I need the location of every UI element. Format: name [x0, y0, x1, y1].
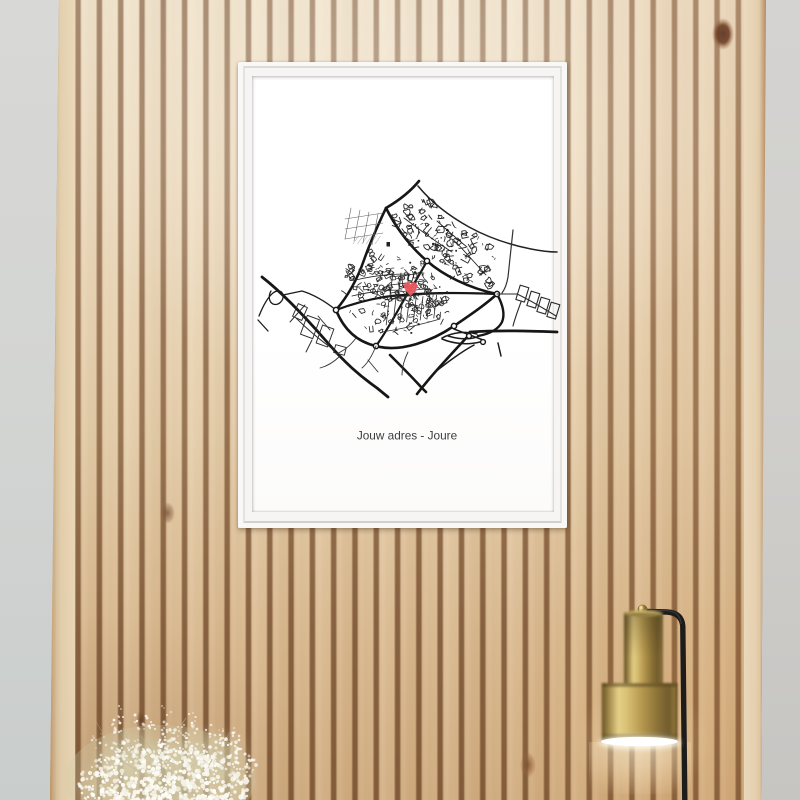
svg-text:Jouw adres - Joure: Jouw adres - Joure: [357, 429, 458, 443]
